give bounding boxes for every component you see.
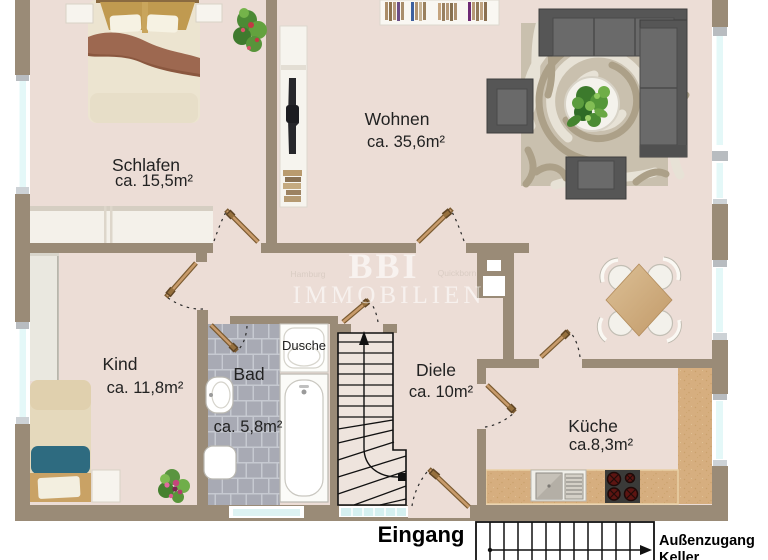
svg-text:ca. 35,6m²: ca. 35,6m² [367,133,445,151]
svg-text:ca. 15,5m²: ca. 15,5m² [115,172,193,190]
svg-text:Quickborn: Quickborn [438,268,477,278]
svg-text:IMMOBILIEN: IMMOBILIEN [293,282,486,309]
svg-text:Eingang: Eingang [378,522,465,547]
svg-text:Keller: Keller [659,550,700,560]
svg-text:Wohnen: Wohnen [365,109,430,129]
svg-text:ca. 5,8m²: ca. 5,8m² [214,418,283,436]
svg-text:Außenzugang: Außenzugang [659,533,755,549]
svg-text:Bad: Bad [233,364,264,384]
svg-text:ca.8,3m²: ca.8,3m² [569,436,634,454]
svg-text:Diele: Diele [416,360,456,380]
svg-text:ca. 11,8m²: ca. 11,8m² [107,379,184,397]
svg-text:Küche: Küche [568,416,618,436]
svg-text:ca. 10m²: ca. 10m² [409,383,474,401]
svg-text:Dusche: Dusche [282,338,326,353]
svg-text:Hamburg: Hamburg [291,269,326,279]
svg-text:Kind: Kind [102,354,137,374]
svg-text:BBI: BBI [348,246,419,286]
